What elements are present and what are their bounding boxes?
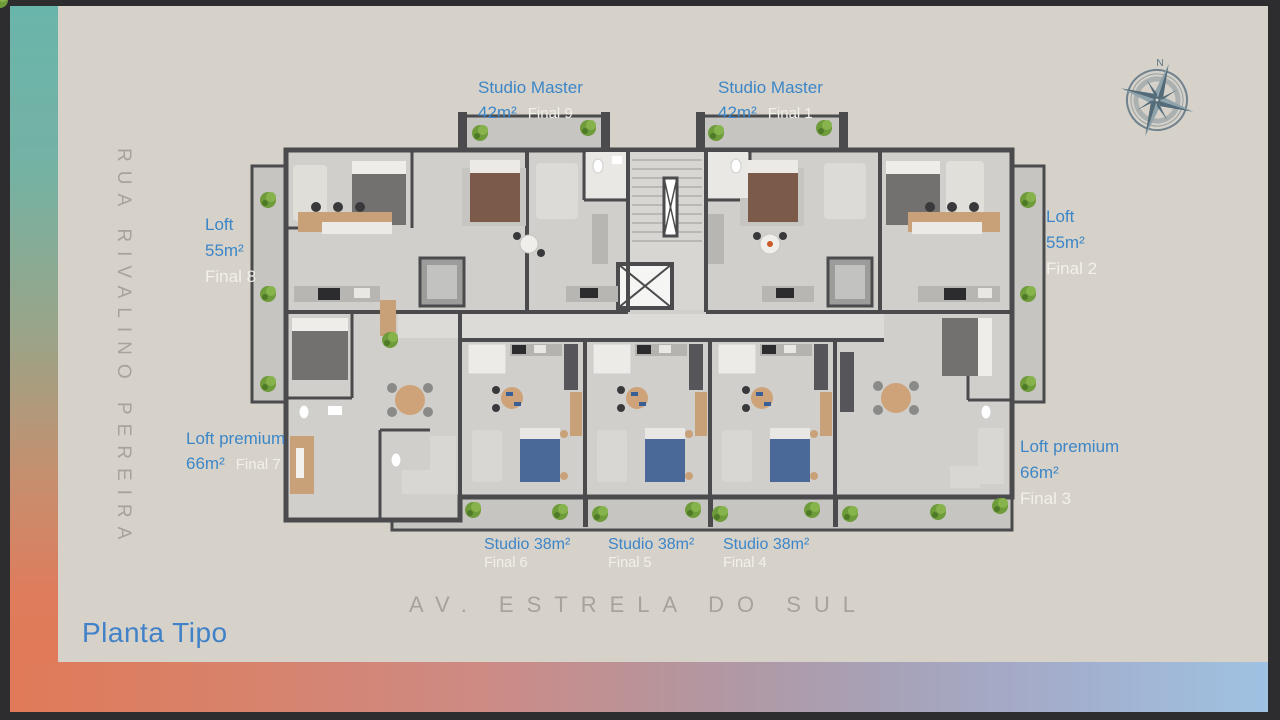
unit-final: Final 2 [1046,256,1097,282]
unit-area: 42m² [478,103,517,122]
unit-label-final-8: Loft 55m² Final 8 [205,212,256,290]
unit-final: Final 8 [205,264,256,290]
unit-name: Loft premium [1020,434,1119,460]
unit-name: Studio Master [478,75,583,100]
unit-name: Studio [723,536,768,553]
unit-area: 55m² [1046,230,1097,256]
unit-name: Studio [484,536,529,553]
unit-name: Loft [1046,204,1097,230]
unit-area: 38m² [773,536,809,553]
unit-area: 66m² [1020,460,1119,486]
unit-label-final-4: Studio 38m² Final 4 [723,535,809,572]
unit-final: Final 4 [723,554,809,572]
slide: N Studio Master 42m²Final 9 Studio Maste… [0,0,1280,720]
unit-name: Studio Master [718,75,823,100]
street-label-bottom: AV. ESTRELA DO SUL [409,592,868,618]
unit-label-final-9: Studio Master 42m²Final 9 [478,75,583,126]
elevator-cab-right [828,258,872,306]
unit-label-final-2: Loft 55m² Final 2 [1046,204,1097,282]
unit-final: Final 7 [236,456,281,473]
unit-final: Final 6 [484,554,570,572]
unit-area: 42m² [718,103,757,122]
corridor [398,314,884,338]
unit-final: Final 9 [528,105,573,122]
unit-final: Final 3 [1020,486,1119,512]
unit-area: 38m² [658,536,694,553]
unit-label-final-1: Studio Master 42m²Final 1 [718,75,823,126]
page-title: Planta Tipo [82,617,228,649]
street-label-left: RUA RIVALINO PEREIRA [112,148,134,548]
unit-name: Loft [205,212,256,238]
compass-north-label: N [1156,58,1163,69]
unit-name: Loft premium [186,426,285,451]
unit-area: 66m² [186,454,225,473]
unit-area: 38m² [534,536,570,553]
compass-rose: N [1112,50,1202,142]
unit-area: 55m² [205,238,256,264]
unit-name: Studio [608,536,653,553]
elevator-cab-left [420,258,464,306]
unit-label-final-6: Studio 38m² Final 6 [484,535,570,572]
unit-label-final-3: Loft premium 66m² Final 3 [1020,434,1119,512]
unit-final: Final 1 [768,105,813,122]
unit-label-final-7: Loft premium 66m²Final 7 [186,426,285,477]
unit-final: Final 5 [608,554,694,572]
unit-label-final-5: Studio 38m² Final 5 [608,535,694,572]
